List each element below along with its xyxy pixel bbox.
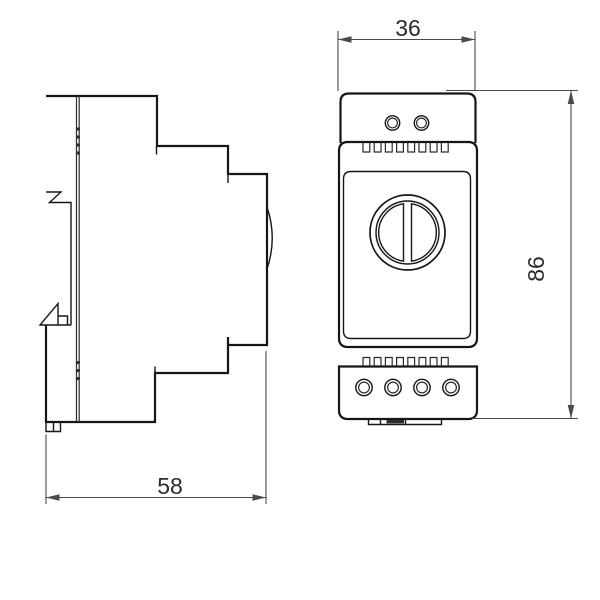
front-inner-panel	[344, 172, 471, 339]
screw-terminal-inner	[417, 118, 427, 128]
vent-slots-top	[363, 143, 448, 152]
screw-terminal-inner	[417, 382, 428, 393]
side-view	[40, 96, 272, 432]
din-clip-latch	[40, 304, 71, 326]
knob-dial	[370, 195, 445, 270]
screw-terminal-inner	[388, 382, 399, 393]
dim-height-label: 86	[523, 256, 549, 282]
dim-width-label: 36	[395, 15, 421, 41]
dimension-height: 86	[446, 91, 578, 419]
dim-depth-label: 58	[157, 473, 183, 499]
front-bottom-section	[339, 367, 477, 420]
front-middle-section	[339, 142, 477, 347]
side-body-outline-lower	[46, 325, 228, 422]
technical-drawing: 36 86 58	[0, 0, 600, 600]
screw-terminal-inner	[388, 118, 398, 128]
drawing-canvas: 36 86 58	[0, 0, 600, 600]
knob-outer-ring	[370, 195, 445, 270]
knob-inner-ring	[376, 201, 439, 264]
front-view	[339, 94, 477, 425]
screw-terminals-top	[385, 116, 428, 130]
dim-height-extension-lines	[446, 91, 578, 419]
side-step-stubs	[155, 146, 228, 373]
front-top-section	[341, 94, 476, 144]
screw-terminal-inner	[446, 382, 457, 393]
screw-terminals-bottom	[356, 379, 459, 395]
screw-terminal-inner	[359, 382, 370, 393]
din-clip-foot-slot	[387, 420, 405, 423]
dimension-width: 36	[338, 15, 475, 91]
side-bottom-foot	[46, 422, 61, 432]
vent-slots-bottom	[363, 358, 448, 367]
